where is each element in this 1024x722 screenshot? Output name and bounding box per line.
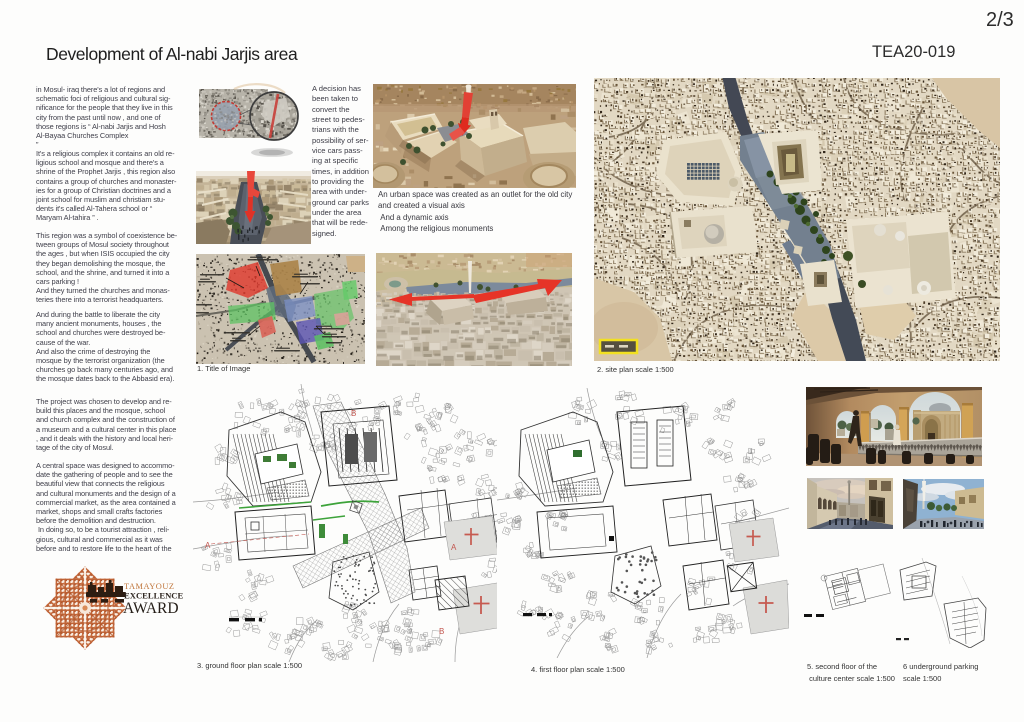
- svg-text:A: A: [205, 541, 211, 550]
- svg-text:AWARD: AWARD: [123, 600, 179, 617]
- svg-text:A: A: [451, 543, 457, 552]
- svg-text:B: B: [439, 627, 444, 636]
- svg-text:B: B: [351, 409, 356, 418]
- svg-text:EXCELLENCE: EXCELLENCE: [124, 591, 183, 601]
